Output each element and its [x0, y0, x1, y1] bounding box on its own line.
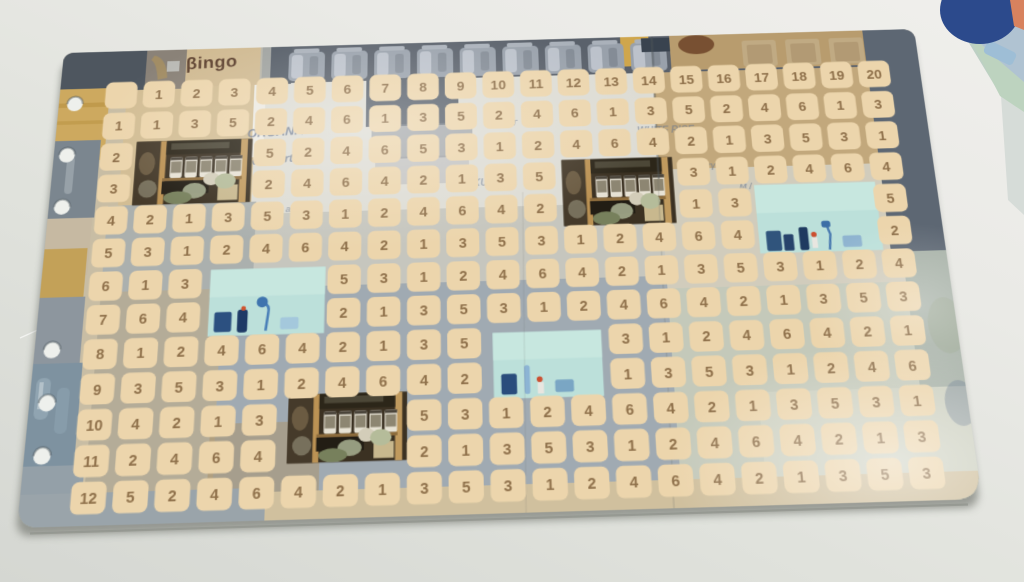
svg-text:2: 2 [176, 344, 185, 361]
svg-text:19: 19 [828, 68, 845, 83]
svg-text:5: 5 [684, 103, 693, 118]
svg-text:3: 3 [420, 337, 428, 354]
svg-text:5: 5 [460, 335, 469, 352]
svg-text:5: 5 [420, 407, 429, 425]
svg-text:2: 2 [766, 162, 775, 178]
svg-text:2: 2 [543, 403, 552, 421]
svg-text:6: 6 [212, 449, 221, 467]
svg-text:2: 2 [172, 414, 182, 432]
svg-text:16: 16 [716, 71, 733, 86]
svg-text:3: 3 [461, 405, 470, 423]
svg-text:6: 6 [782, 326, 792, 343]
svg-text:4: 4 [420, 371, 429, 388]
svg-text:6: 6 [659, 295, 668, 312]
svg-text:2: 2 [420, 443, 429, 461]
svg-text:2: 2 [222, 242, 231, 258]
svg-text:1: 1 [136, 345, 146, 362]
svg-text:3: 3 [621, 331, 630, 348]
svg-text:5: 5 [125, 488, 135, 506]
svg-text:5: 5 [104, 245, 113, 261]
svg-text:1: 1 [779, 292, 789, 309]
svg-text:17: 17 [753, 70, 770, 85]
svg-text:5: 5 [498, 234, 506, 250]
svg-text:5: 5 [736, 260, 746, 276]
svg-text:2: 2 [617, 263, 626, 279]
svg-text:3: 3 [133, 380, 143, 397]
svg-text:6: 6 [379, 372, 387, 389]
svg-text:2: 2 [146, 212, 155, 228]
svg-text:3: 3 [255, 411, 264, 429]
svg-text:3: 3 [697, 261, 706, 277]
svg-text:3: 3 [181, 276, 190, 293]
svg-text:5: 5 [340, 271, 348, 287]
svg-text:20: 20 [866, 67, 883, 82]
svg-text:2: 2 [167, 487, 177, 505]
svg-text:4: 4 [338, 374, 347, 391]
svg-text:6: 6 [538, 266, 547, 282]
svg-text:1: 1 [379, 338, 387, 355]
svg-text:4: 4 [578, 264, 588, 280]
svg-text:3: 3 [380, 270, 388, 286]
svg-text:2: 2 [459, 268, 467, 284]
svg-text:1: 1 [213, 413, 222, 431]
svg-text:5: 5 [174, 378, 183, 395]
svg-text:1: 1 [141, 277, 150, 294]
svg-text:1: 1 [725, 132, 734, 147]
svg-text:3: 3 [689, 164, 698, 180]
svg-text:5: 5 [704, 363, 714, 380]
svg-text:2: 2 [460, 370, 469, 387]
svg-text:3: 3 [664, 364, 673, 381]
svg-text:11: 11 [82, 452, 100, 470]
svg-text:4: 4 [253, 447, 263, 465]
svg-text:1: 1 [539, 299, 548, 316]
svg-text:1: 1 [461, 441, 470, 459]
svg-text:3: 3 [420, 479, 429, 497]
svg-text:1: 1 [546, 475, 555, 493]
svg-text:12: 12 [79, 489, 98, 508]
svg-text:2: 2 [297, 375, 306, 392]
svg-text:1: 1 [657, 262, 666, 278]
svg-text:2: 2 [702, 328, 712, 345]
svg-text:7: 7 [98, 312, 108, 329]
svg-text:2: 2 [339, 339, 348, 356]
svg-text:2: 2 [336, 482, 345, 500]
svg-text:1: 1 [661, 329, 670, 346]
svg-text:2: 2 [722, 102, 731, 117]
svg-text:1: 1 [502, 404, 511, 422]
svg-text:4: 4 [298, 340, 308, 357]
svg-text:3: 3 [763, 131, 772, 146]
svg-text:5: 5 [544, 439, 553, 457]
svg-text:3: 3 [537, 233, 546, 249]
svg-text:4: 4 [262, 241, 271, 257]
svg-text:6: 6 [252, 484, 261, 502]
svg-text:2: 2 [687, 133, 696, 148]
svg-text:5: 5 [801, 130, 810, 145]
svg-text:9: 9 [92, 381, 102, 398]
svg-text:2: 2 [579, 298, 588, 315]
svg-text:6: 6 [258, 341, 267, 358]
svg-text:1: 1 [183, 243, 192, 259]
svg-text:4: 4 [499, 267, 508, 283]
svg-text:1: 1 [256, 376, 265, 393]
svg-text:1: 1 [378, 480, 387, 498]
svg-text:4: 4 [294, 483, 304, 501]
svg-text:3: 3 [586, 438, 595, 456]
svg-text:3: 3 [215, 377, 224, 394]
svg-text:5: 5 [460, 301, 468, 318]
svg-text:1: 1 [576, 232, 585, 248]
svg-text:6: 6 [138, 311, 147, 328]
svg-text:1: 1 [692, 196, 701, 212]
svg-text:1: 1 [623, 365, 632, 382]
svg-text:6: 6 [694, 228, 703, 244]
svg-text:3: 3 [776, 259, 786, 275]
svg-text:2: 2 [739, 293, 749, 310]
svg-text:1: 1 [627, 436, 637, 454]
svg-text:8: 8 [95, 346, 105, 363]
svg-text:3: 3 [420, 302, 428, 319]
svg-text:3: 3 [504, 477, 513, 495]
svg-text:15: 15 [678, 72, 695, 87]
svg-text:2: 2 [339, 305, 348, 322]
svg-text:6: 6 [798, 99, 807, 114]
svg-text:1: 1 [420, 269, 428, 285]
svg-text:14: 14 [641, 73, 658, 88]
svg-text:5: 5 [462, 478, 471, 496]
svg-text:1: 1 [728, 163, 737, 179]
svg-text:2: 2 [616, 230, 625, 246]
svg-text:18: 18 [791, 69, 808, 84]
svg-text:2: 2 [128, 451, 138, 469]
svg-text:3: 3 [143, 244, 152, 260]
svg-text:6: 6 [625, 401, 634, 419]
svg-text:3: 3 [503, 440, 512, 458]
svg-text:10: 10 [85, 416, 103, 434]
svg-text:1: 1 [379, 304, 387, 321]
svg-text:6: 6 [101, 278, 110, 295]
svg-text:3: 3 [730, 195, 739, 211]
svg-text:2: 2 [587, 474, 596, 492]
svg-text:3: 3 [499, 300, 508, 317]
